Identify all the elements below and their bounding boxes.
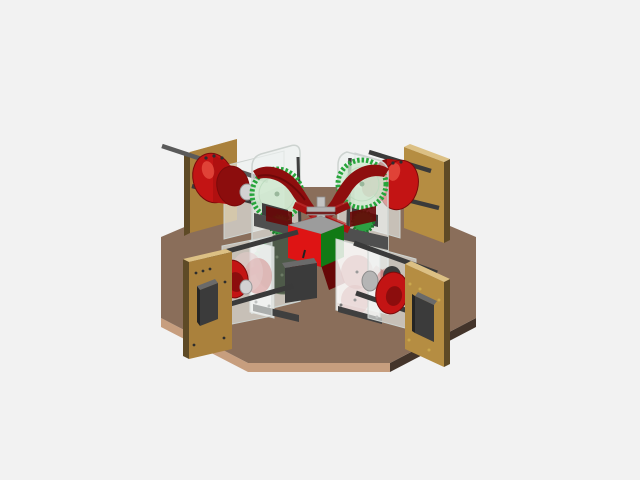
- screw-head: [212, 154, 215, 157]
- disc-axle: [354, 299, 357, 302]
- screw-head: [408, 339, 411, 342]
- disc-axle: [356, 271, 359, 274]
- screw-head: [202, 270, 205, 273]
- screw-head: [193, 344, 196, 347]
- cad-viewport[interactable]: [0, 0, 640, 480]
- screw-head: [224, 281, 227, 284]
- screw-head: [195, 272, 198, 275]
- servo-side-face: [197, 286, 200, 326]
- panel-side-face: [444, 279, 450, 367]
- servo-motor: [200, 283, 218, 326]
- screw-head: [391, 161, 394, 164]
- gear-axle: [275, 192, 280, 197]
- screw-head: [428, 349, 431, 352]
- screw-head: [204, 156, 207, 159]
- screw-head: [340, 304, 343, 307]
- screw-head: [409, 283, 412, 286]
- panel-side-face: [184, 152, 190, 236]
- base-front-edge: [248, 363, 390, 372]
- panel-side-face: [183, 259, 189, 359]
- screw-head: [419, 288, 422, 291]
- gear-axle: [360, 182, 365, 187]
- disc-hole: [281, 274, 284, 277]
- screw-head: [399, 160, 402, 163]
- screw-head: [220, 156, 223, 159]
- servo-side-face: [412, 294, 415, 333]
- shaft-end-cylinder: [362, 271, 378, 291]
- screw-head: [209, 268, 212, 271]
- bearing-hub: [240, 280, 252, 294]
- disc-hole: [276, 256, 279, 259]
- screw-head: [223, 337, 226, 340]
- servo-motor: [285, 263, 317, 303]
- screw-head: [438, 299, 441, 302]
- panel-side-face: [444, 159, 450, 243]
